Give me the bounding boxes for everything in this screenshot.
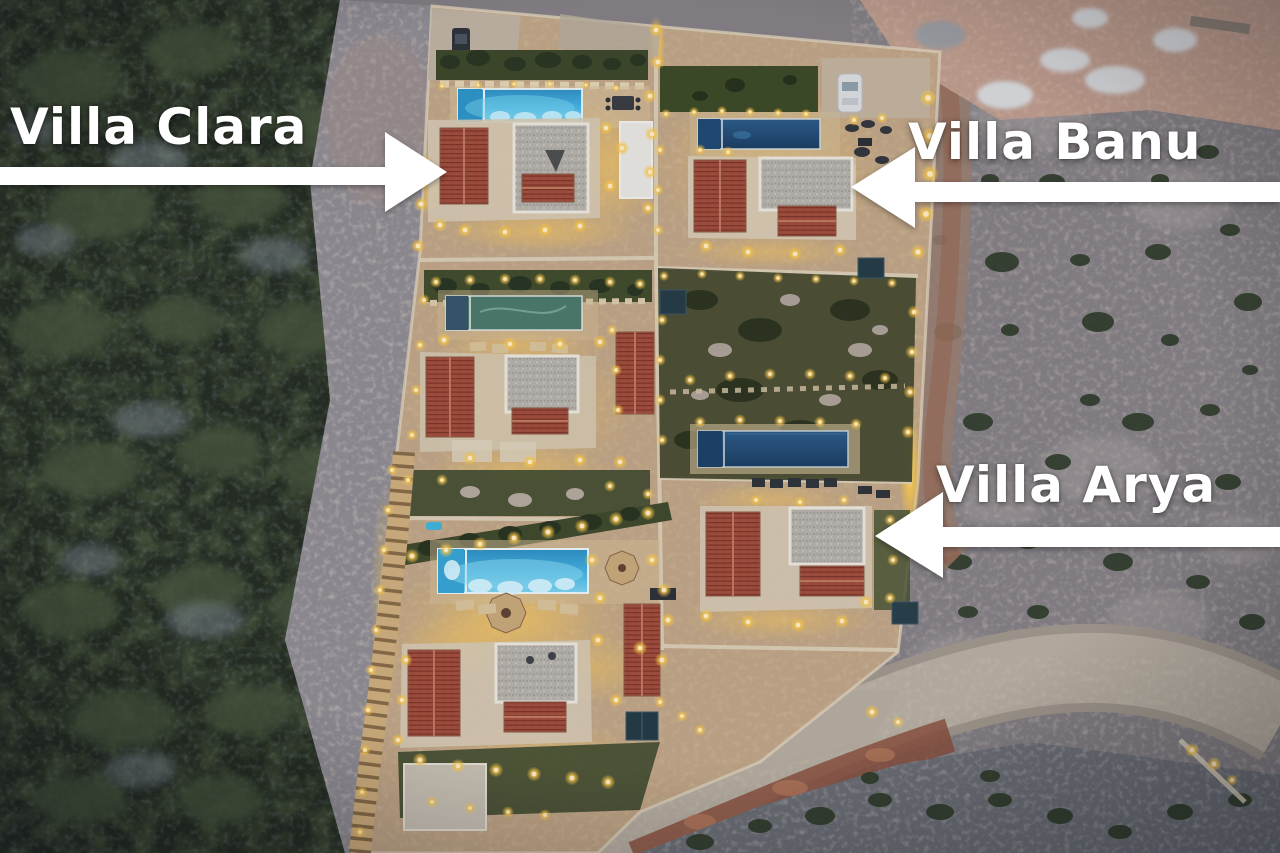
- annotated-aerial-photo: Villa Clara Villa Banu Villa Arya: [0, 0, 1280, 853]
- villa-banu-arrow: [845, 140, 1280, 235]
- villa-clara-arrow: [0, 128, 460, 218]
- villa-arya-arrow: [868, 488, 1280, 583]
